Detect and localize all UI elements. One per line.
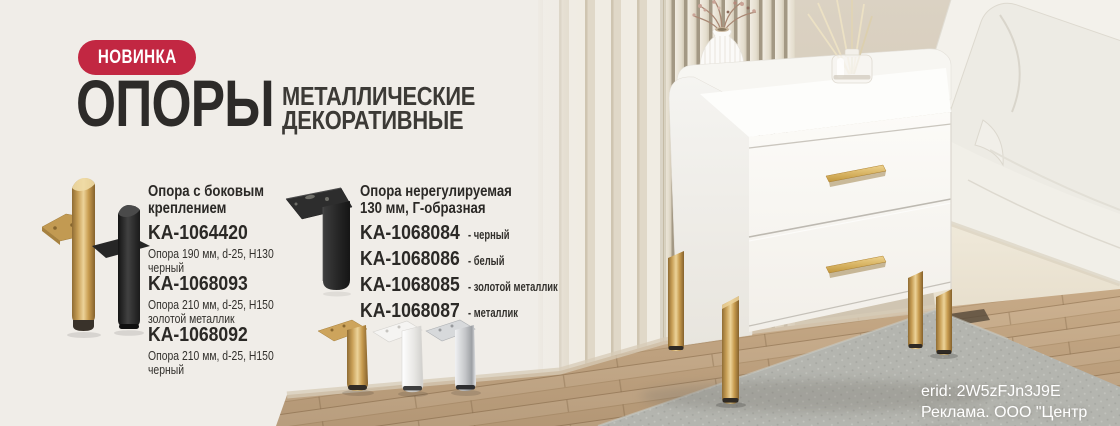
product-code: KA-1068093 <box>148 275 248 294</box>
product-color: - металлик <box>468 304 518 323</box>
product-item: KA-1068085 - золотой металлик <box>360 276 588 297</box>
column-header-line-2: креплением <box>148 200 264 217</box>
product-desc-line-1: Опора 210 мм, d-25, H150 <box>148 298 274 312</box>
product-item: KA-1068086 - белый <box>360 250 588 271</box>
product-item: KA-1068087 - металлик <box>360 302 588 323</box>
subtitle-line-2: ДЕКОРАТИВНЫЕ <box>282 108 475 132</box>
erid-text: erid: 2W5zFJn3J9E <box>921 382 1120 403</box>
column-header: Опора с боковым креплением <box>148 183 305 217</box>
page-subtitle: МЕТАЛЛИЧЕСКИЕ ДЕКОРАТИВНЫЕ <box>282 84 512 132</box>
product-code: KA-1068087 <box>360 302 460 321</box>
product-desc-line-2: золотой металлик <box>148 312 274 326</box>
column-header-line-1: Опора нерегулируемая <box>360 183 512 200</box>
product-item: KA-1064420 Опора 190 мм, d-25, H130 черн… <box>148 224 305 274</box>
product-code: KA-1068086 <box>360 250 460 269</box>
product-item: KA-1068092 Опора 210 мм, d-25, H150 черн… <box>148 326 305 376</box>
product-color: - черный <box>468 226 510 245</box>
product-code: KA-1064420 <box>148 224 248 243</box>
page-title-text: ОПОРЫ <box>76 72 274 134</box>
product-item: KA-1068093 Опора 210 мм, d-25, H150 золо… <box>148 275 305 325</box>
advertiser-text: Реклама. ООО "Центр КДМ" <box>921 403 1120 426</box>
legal-info: erid: 2W5zFJn3J9E Реклама. ООО "Центр КД… <box>921 382 1120 426</box>
promo-banner: НОВИНКА ОПОРЫ МЕТАЛЛИЧЕСКИЕ ДЕКОРАТИВНЫЕ… <box>0 0 1120 426</box>
product-code: KA-1068084 <box>360 224 460 243</box>
product-code: KA-1068085 <box>360 276 460 295</box>
product-desc-line-2: черный <box>148 261 274 275</box>
product-desc-line-2: черный <box>148 363 274 377</box>
column-header: Опора нерегулируемая 130 мм, Г-образная <box>360 183 588 217</box>
product-desc-line-1: Опора 190 мм, d-25, H130 <box>148 247 274 261</box>
product-column-side-mount: Опора с боковым креплением KA-1064420 Оп… <box>148 183 305 377</box>
product-color: - золотой металлик <box>468 278 558 297</box>
product-desc-line-1: Опора 210 мм, d-25, H150 <box>148 349 274 363</box>
column-header-line-1: Опора с боковым <box>148 183 264 200</box>
product-column-l-shaped: Опора нерегулируемая 130 мм, Г-образная … <box>360 183 588 328</box>
product-item: KA-1068084 - черный <box>360 224 588 245</box>
product-code: KA-1068092 <box>148 326 248 345</box>
column-header-line-2: 130 мм, Г-образная <box>360 200 512 217</box>
product-color: - белый <box>468 252 504 271</box>
